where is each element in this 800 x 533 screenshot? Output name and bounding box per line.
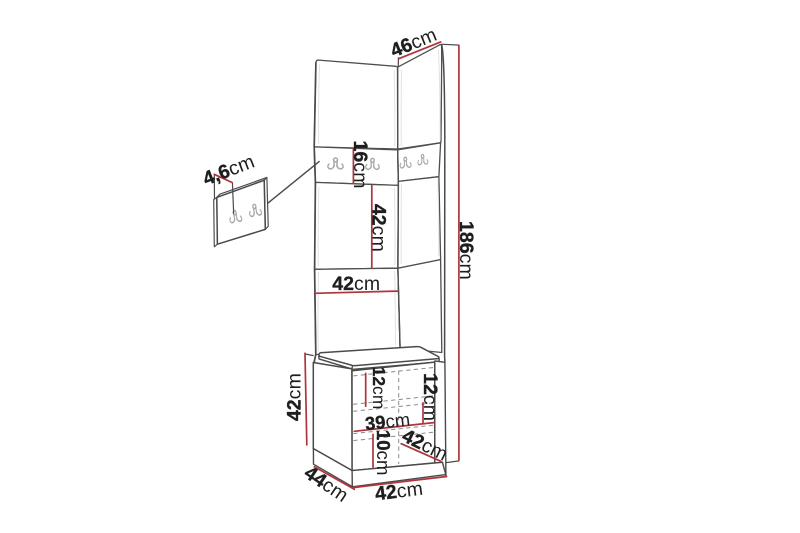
svg-text:42cm: 42cm — [332, 273, 380, 295]
svg-text:186cm: 186cm — [455, 221, 477, 280]
svg-text:42cm: 42cm — [283, 373, 305, 421]
svg-text:10cm: 10cm — [373, 430, 394, 476]
svg-text:42cm: 42cm — [367, 204, 389, 252]
svg-text:12cm: 12cm — [369, 367, 389, 410]
svg-text:16cm: 16cm — [349, 141, 371, 189]
svg-text:12cm: 12cm — [419, 373, 441, 421]
svg-text:42cm: 42cm — [374, 478, 424, 506]
